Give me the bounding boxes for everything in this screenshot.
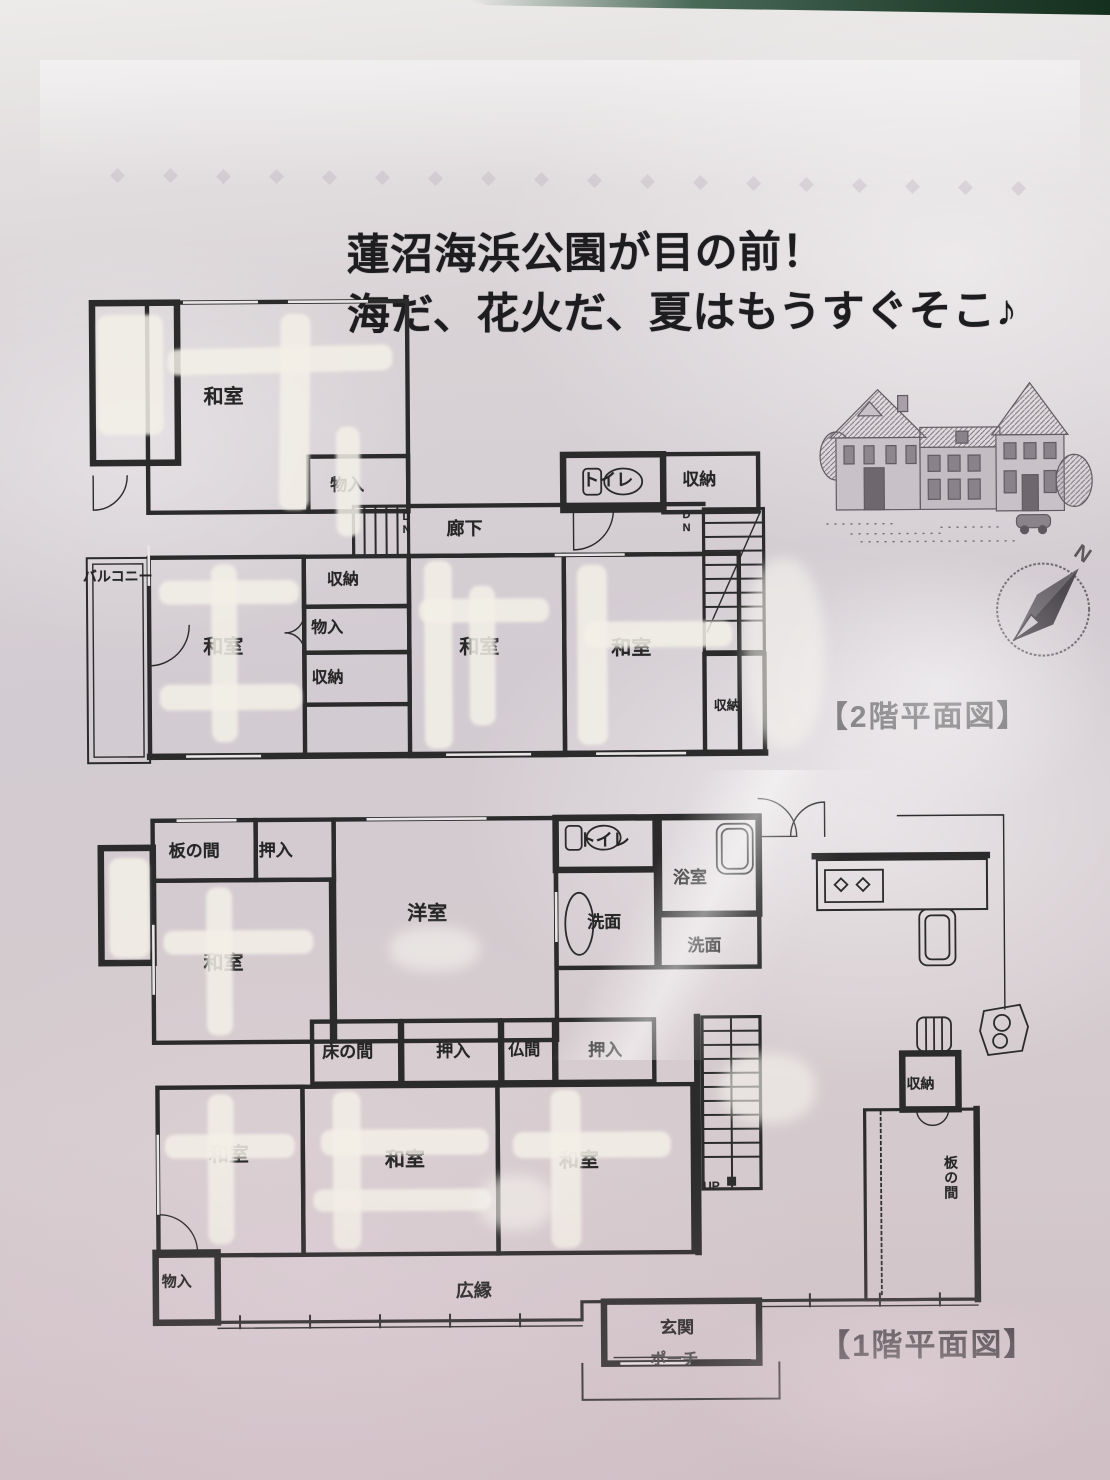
whiteout-mark (478, 1175, 553, 1231)
whiteout-mark (389, 927, 479, 972)
room-label: 押入 (588, 1036, 622, 1061)
room-label: 床の間 (322, 1037, 373, 1062)
room-label: 洗面 (587, 908, 621, 933)
room-label: トイレ (579, 825, 630, 850)
whiteout-mark (513, 1131, 671, 1158)
whiteout-mark (279, 314, 311, 510)
kitchen-sink-icon (919, 909, 955, 965)
room-2f-washitsu-top (147, 301, 408, 513)
room-label: 物入 (311, 613, 343, 637)
room-label: 収納 (714, 695, 740, 714)
house-illustration (819, 374, 1100, 546)
whiteout-mark (313, 1188, 491, 1211)
room-label: 仏間 (508, 1036, 540, 1060)
whiteout-mark (332, 1091, 361, 1249)
room-label: バルコニー (83, 566, 153, 586)
compass-icon (987, 552, 1100, 665)
room-label: 板の間 (941, 1155, 961, 1200)
whiteout-mark (550, 1090, 581, 1248)
whiteout-mark (211, 564, 238, 742)
room-label: 廊下 (446, 515, 482, 541)
room-label: ポーチ (650, 1345, 698, 1369)
door-arc (93, 476, 127, 510)
room-label: 物入 (162, 1271, 192, 1292)
door-arc (149, 626, 189, 666)
room-label: UP (703, 1179, 720, 1193)
room-label: 玄関 (660, 1313, 694, 1338)
whiteout-mark (321, 1128, 489, 1155)
whiteout-mark (165, 1134, 295, 1159)
whiteout-mark (577, 565, 608, 745)
veranda-outer-wall-right (759, 1299, 978, 1301)
whiteout-mark (424, 561, 453, 749)
room-label: 板の間 (169, 836, 220, 861)
entrance-tower (864, 468, 884, 510)
room-label: 押入 (259, 836, 293, 861)
floor1-title: 【1階平面図】 (819, 1319, 1037, 1366)
bush (1056, 454, 1092, 506)
room-label: DN (680, 509, 692, 535)
room-label: トイレ (582, 465, 633, 490)
whiteout-mark (336, 426, 361, 536)
kitchen-wall (815, 855, 987, 856)
bathtub-icon (717, 824, 753, 874)
room-label: 広縁 (456, 1276, 492, 1302)
veranda-outer-wall (218, 1302, 604, 1323)
water-heater-icon (980, 1005, 1028, 1055)
whiteout-mark (720, 1053, 815, 1124)
site-boundary-line (898, 815, 1005, 1010)
corridor-top-wall (408, 504, 703, 506)
room-label: 収納 (682, 465, 716, 490)
whiteout-mark (160, 684, 302, 711)
room-label: DN (400, 511, 412, 537)
room-label: 収納 (327, 565, 359, 589)
flyer-photo: 蓮沼海浜公園が目の前！ 海だ、花火だ、夏はもうすぐそこ♪ (0, 0, 1110, 1480)
room-label: 収納 (311, 663, 343, 687)
whiteout-mark (109, 858, 150, 958)
floor2-title: 【2階平面図】 (818, 691, 1029, 736)
room-label: 押入 (436, 1037, 470, 1062)
stove-icon (825, 870, 883, 902)
flyer-sheet: 蓮沼海浜公園が目の前！ 海だ、花火だ、夏はもうすぐそこ♪ (0, 0, 1110, 1480)
room-label: 収納 (906, 1073, 934, 1093)
whiteout-mark (744, 558, 825, 749)
room-label: 浴室 (673, 863, 707, 888)
balcony-2f (87, 558, 150, 763)
ground-texture (826, 523, 1020, 542)
door-arc (159, 1215, 197, 1253)
door-arc (573, 510, 613, 550)
door-arc (790, 802, 824, 836)
barrel-icon (917, 1017, 951, 1051)
whiteout-mark (163, 930, 313, 955)
room-label: 洋室 (407, 897, 447, 926)
right-roof (992, 382, 1068, 435)
whiteout-mark (207, 1094, 234, 1244)
whiteout-mark (97, 315, 164, 435)
whiteout-mark (206, 887, 233, 1035)
whiteout-mark (584, 621, 732, 648)
car (1016, 515, 1050, 528)
room-label: 和室 (203, 380, 243, 409)
room-label: 洗面 (687, 931, 721, 956)
headline-line1: 蓮沼海浜公園が目の前！ (346, 221, 1017, 286)
double-door-icon (285, 614, 304, 652)
